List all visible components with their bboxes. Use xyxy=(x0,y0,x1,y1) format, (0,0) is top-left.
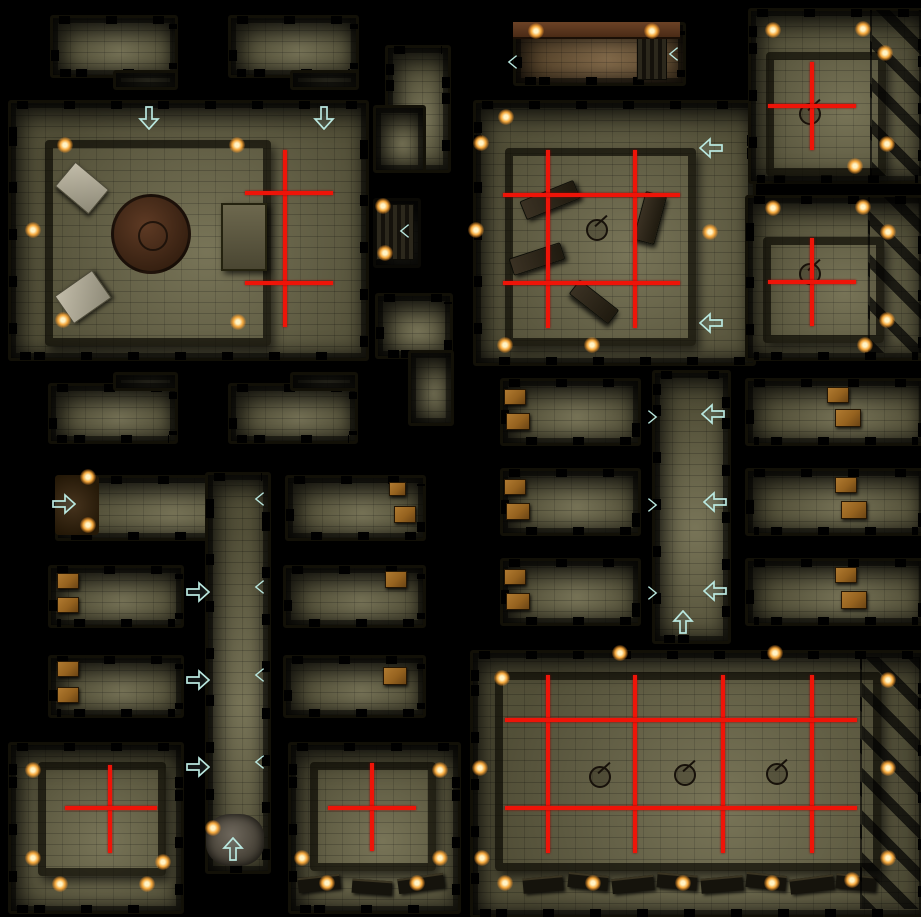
red-grid-line xyxy=(721,675,725,853)
wall-notches xyxy=(509,617,632,625)
torch-light xyxy=(474,850,490,866)
crate xyxy=(383,667,407,685)
wall-notches xyxy=(350,24,358,69)
wall-notches xyxy=(17,352,360,360)
torch-light xyxy=(80,517,96,533)
wall-notches xyxy=(746,567,754,617)
torch-light xyxy=(612,645,628,661)
candelabra xyxy=(674,764,696,786)
red-grid-line xyxy=(633,675,637,853)
wall-notches xyxy=(394,46,442,54)
wall-notches xyxy=(294,532,417,540)
red-grid-line xyxy=(245,281,333,285)
torch-light xyxy=(497,337,513,353)
wall-notches xyxy=(292,709,417,717)
torch-light xyxy=(229,137,245,153)
crate xyxy=(841,591,867,609)
room-mid-l-room xyxy=(408,350,454,426)
wall-notches xyxy=(9,751,17,905)
room-w-row4-right xyxy=(283,655,426,718)
wall-notches xyxy=(417,664,425,709)
wall-notches xyxy=(632,387,640,437)
wall-notches xyxy=(284,664,292,709)
crate xyxy=(835,477,857,493)
exit-arrow-right[interactable] xyxy=(186,664,210,692)
red-grid-line xyxy=(768,280,856,284)
torch-light xyxy=(472,760,488,776)
wall-notches xyxy=(754,527,918,535)
torch-light xyxy=(230,314,246,330)
wall-notches xyxy=(17,101,360,109)
wall-notches xyxy=(471,659,479,909)
wall-notches xyxy=(509,469,632,477)
crate xyxy=(504,389,526,405)
room-nw-small-2 xyxy=(228,15,359,78)
exit-arrow-down[interactable] xyxy=(137,106,165,130)
wall-notches xyxy=(237,435,349,443)
torch-light xyxy=(55,312,71,328)
wall-notches xyxy=(746,204,754,352)
wall-notches xyxy=(49,392,57,435)
door-chevron-left[interactable] xyxy=(506,52,523,76)
wall-notches xyxy=(229,392,237,435)
stone-dais xyxy=(111,194,191,274)
wall-notches xyxy=(754,352,918,360)
wall-notches xyxy=(17,743,175,751)
crate xyxy=(57,687,79,703)
exit-arrow-left[interactable] xyxy=(699,136,723,164)
buttress xyxy=(870,10,921,176)
wall-notches xyxy=(175,664,183,709)
torch-light xyxy=(205,820,221,836)
torch-light xyxy=(765,22,781,38)
torch-light xyxy=(409,875,425,891)
wall-notches xyxy=(229,24,237,69)
wall-notches xyxy=(442,54,450,164)
door-chevron-left[interactable] xyxy=(253,489,270,513)
wall-notches xyxy=(661,635,722,643)
red-grid-line xyxy=(245,191,333,195)
wall-notches xyxy=(169,392,177,435)
room-w-row1-left xyxy=(113,372,178,391)
wall-notches xyxy=(286,484,294,532)
crate xyxy=(57,573,79,589)
torch-light xyxy=(319,875,335,891)
door-chevron-left[interactable] xyxy=(398,221,415,245)
torch-light xyxy=(644,23,660,39)
wall-notches xyxy=(292,656,417,664)
crate xyxy=(385,571,407,588)
torch-light xyxy=(25,850,41,866)
torch-light xyxy=(879,312,895,328)
red-grid-line xyxy=(328,806,416,810)
torch-light xyxy=(497,875,513,891)
room-w-row1-left xyxy=(48,383,178,444)
wall-notches xyxy=(754,379,918,387)
bench xyxy=(352,879,393,896)
room-w-row1-mid xyxy=(290,372,358,391)
crate xyxy=(827,387,849,403)
torch-light xyxy=(585,875,601,891)
buttress xyxy=(860,657,920,909)
wall-notches xyxy=(757,175,918,183)
room-w-row1-mid xyxy=(228,383,358,444)
wall-notches xyxy=(57,435,169,443)
red-grid-line xyxy=(503,281,680,285)
torch-light xyxy=(25,762,41,778)
torch-light xyxy=(764,875,780,891)
red-grid-line xyxy=(768,104,856,108)
dungeon-map-canvas[interactable] xyxy=(0,0,921,917)
exit-arrow-up[interactable] xyxy=(217,837,245,861)
table xyxy=(221,203,267,271)
torch-light xyxy=(847,158,863,174)
wall-notches xyxy=(417,574,425,619)
torch-light xyxy=(765,200,781,216)
wall-notches xyxy=(237,16,350,24)
torch-light xyxy=(377,245,393,261)
torch-light xyxy=(294,850,310,866)
crate xyxy=(506,503,530,520)
red-grid-line xyxy=(65,806,157,810)
crate xyxy=(506,413,530,430)
torch-light xyxy=(844,872,860,888)
room-e-row2-right xyxy=(745,468,921,536)
torch-light xyxy=(880,224,896,240)
crate xyxy=(504,569,526,585)
red-grid-line xyxy=(505,718,857,722)
wall-notches xyxy=(214,473,262,481)
wall-notches xyxy=(360,109,368,352)
wall-notches xyxy=(59,16,169,24)
wall-notches xyxy=(297,743,452,751)
exit-arrow-right[interactable] xyxy=(186,576,210,604)
wall-notches xyxy=(632,477,640,527)
door-chevron-left[interactable] xyxy=(253,577,270,601)
crate xyxy=(57,661,79,677)
crate xyxy=(506,593,530,610)
door-chevron-right[interactable] xyxy=(642,403,659,427)
wall-notches xyxy=(297,905,452,913)
wall-notches xyxy=(632,567,640,617)
wall-notches xyxy=(452,751,460,905)
torch-light xyxy=(432,850,448,866)
wall-notches xyxy=(746,477,754,527)
wall-notches xyxy=(384,294,444,302)
wall-notches xyxy=(57,619,175,627)
torch-light xyxy=(528,23,544,39)
torch-light xyxy=(52,876,68,892)
room-north-l-room xyxy=(373,105,426,173)
torch-light xyxy=(857,337,873,353)
room-nw-small-1 xyxy=(50,15,178,78)
torch-light xyxy=(432,762,448,778)
wall-notches xyxy=(754,437,918,445)
torch-light xyxy=(702,224,718,240)
crate xyxy=(841,501,867,519)
wall-notches xyxy=(444,302,452,350)
torch-light xyxy=(675,875,691,891)
exit-arrow-right[interactable] xyxy=(52,488,76,516)
wall-notches xyxy=(482,101,747,109)
stairs xyxy=(637,33,667,80)
red-grid-line xyxy=(503,193,680,197)
inner-wall xyxy=(766,52,886,176)
room-nw-small-2 xyxy=(290,70,359,90)
red-grid-line xyxy=(546,150,550,328)
torch-light xyxy=(879,136,895,152)
candelabra xyxy=(589,766,611,788)
torch-light xyxy=(855,199,871,215)
torch-light xyxy=(880,850,896,866)
door-chevron-left[interactable] xyxy=(253,752,270,776)
inner-wall xyxy=(38,762,166,876)
wall-notches xyxy=(479,651,918,659)
door-chevron-right[interactable] xyxy=(642,579,659,603)
torch-light xyxy=(494,670,510,686)
torch-light xyxy=(498,109,514,125)
wall-notches xyxy=(49,574,57,619)
wall-notches xyxy=(9,109,17,352)
torch-light xyxy=(57,137,73,153)
crate xyxy=(389,482,406,496)
torch-light xyxy=(855,21,871,37)
wall-notches xyxy=(509,437,632,445)
exit-arrow-left[interactable] xyxy=(701,402,725,430)
torch-light xyxy=(584,337,600,353)
candelabra xyxy=(766,763,788,785)
wall-notches xyxy=(417,484,425,532)
wall-notches xyxy=(49,664,57,709)
wall-notches xyxy=(175,751,183,905)
wall-notches xyxy=(376,302,384,350)
torch-light xyxy=(80,469,96,485)
wall-notches xyxy=(349,392,357,435)
wall-notches xyxy=(175,574,183,619)
red-grid-line xyxy=(810,675,814,853)
door-chevron-left[interactable] xyxy=(253,665,270,689)
door-chevron-left[interactable] xyxy=(667,44,684,68)
room-e-row3-right xyxy=(745,558,921,626)
wall-notches xyxy=(57,709,175,717)
wall-notches xyxy=(214,865,262,873)
exit-arrow-up[interactable] xyxy=(667,610,695,634)
torch-light xyxy=(155,854,171,870)
torch-light xyxy=(767,645,783,661)
red-grid-line xyxy=(283,150,287,327)
dais-ring xyxy=(138,221,168,251)
door-chevron-right[interactable] xyxy=(642,491,659,515)
wall-notches xyxy=(509,559,632,567)
crate xyxy=(57,597,79,613)
wall-notches xyxy=(661,371,722,379)
wall-notches xyxy=(284,574,292,619)
wall-notches xyxy=(754,469,918,477)
exit-arrow-left[interactable] xyxy=(703,579,727,607)
wall-notches xyxy=(754,617,918,625)
crate xyxy=(394,506,416,523)
torch-light xyxy=(473,135,489,151)
wall-notches xyxy=(292,619,417,627)
exit-arrow-right[interactable] xyxy=(186,751,210,779)
wall-notches xyxy=(482,357,747,365)
torch-light xyxy=(139,876,155,892)
candelabra xyxy=(586,219,608,241)
wall-notches xyxy=(746,387,754,437)
wall-notches xyxy=(51,24,59,69)
torch-light xyxy=(25,222,41,238)
red-grid-line xyxy=(633,150,637,328)
torch-light xyxy=(880,760,896,776)
buttress xyxy=(868,197,921,353)
wall-notches xyxy=(749,17,757,175)
wall-notches xyxy=(479,909,918,917)
inner-wall xyxy=(763,237,884,343)
wall-notches xyxy=(509,379,632,387)
crate xyxy=(835,409,861,427)
exit-arrow-down[interactable] xyxy=(312,106,340,130)
wall-notches xyxy=(509,527,632,535)
wall-notches xyxy=(289,751,297,905)
crate xyxy=(835,567,857,583)
wall-notches xyxy=(169,24,177,69)
red-grid-line xyxy=(546,675,550,853)
room-nw-small-1 xyxy=(113,70,178,90)
torch-light xyxy=(375,198,391,214)
exit-arrow-left[interactable] xyxy=(703,490,727,518)
wall-notches xyxy=(754,559,918,567)
crate xyxy=(504,479,526,495)
wall-notches xyxy=(17,905,175,913)
torch-light xyxy=(468,222,484,238)
torch-light xyxy=(880,672,896,688)
exit-arrow-left[interactable] xyxy=(699,311,723,339)
torch-light xyxy=(877,45,893,61)
red-grid-line xyxy=(505,806,857,810)
